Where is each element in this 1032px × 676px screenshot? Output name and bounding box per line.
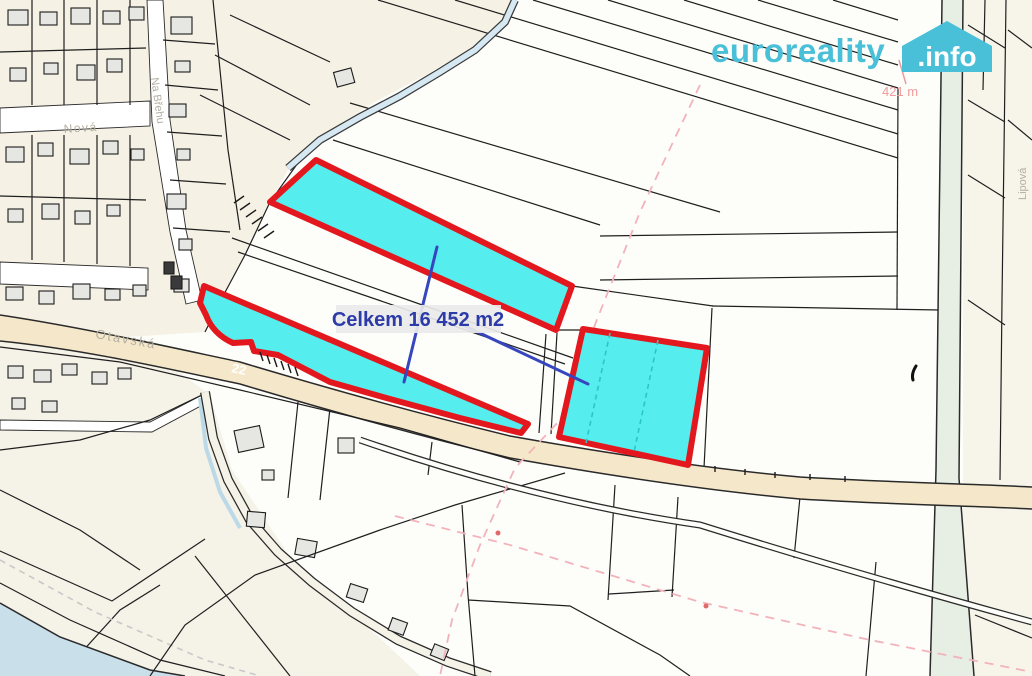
brand-suffix-text: .info: [917, 41, 976, 72]
map-mark: [912, 366, 916, 380]
cadastral-map-screenshot: Celkem 16 452 m2 Otavská 22 Nová Na Břeh…: [0, 0, 1032, 676]
highlighted-parcel-3: [559, 329, 707, 465]
street-label-lipova: Lipová: [1017, 167, 1029, 200]
main-road-number-label: 22: [230, 360, 247, 378]
street-label-nova: Nová: [63, 120, 98, 136]
distance-label: 421 m: [882, 84, 918, 99]
total-area-label: Celkem 16 452 m2: [332, 309, 504, 331]
brand-text: euroreality: [711, 32, 885, 69]
cadastral-map: Celkem 16 452 m2 Otavská 22 Nová Na Břeh…: [0, 0, 1032, 676]
